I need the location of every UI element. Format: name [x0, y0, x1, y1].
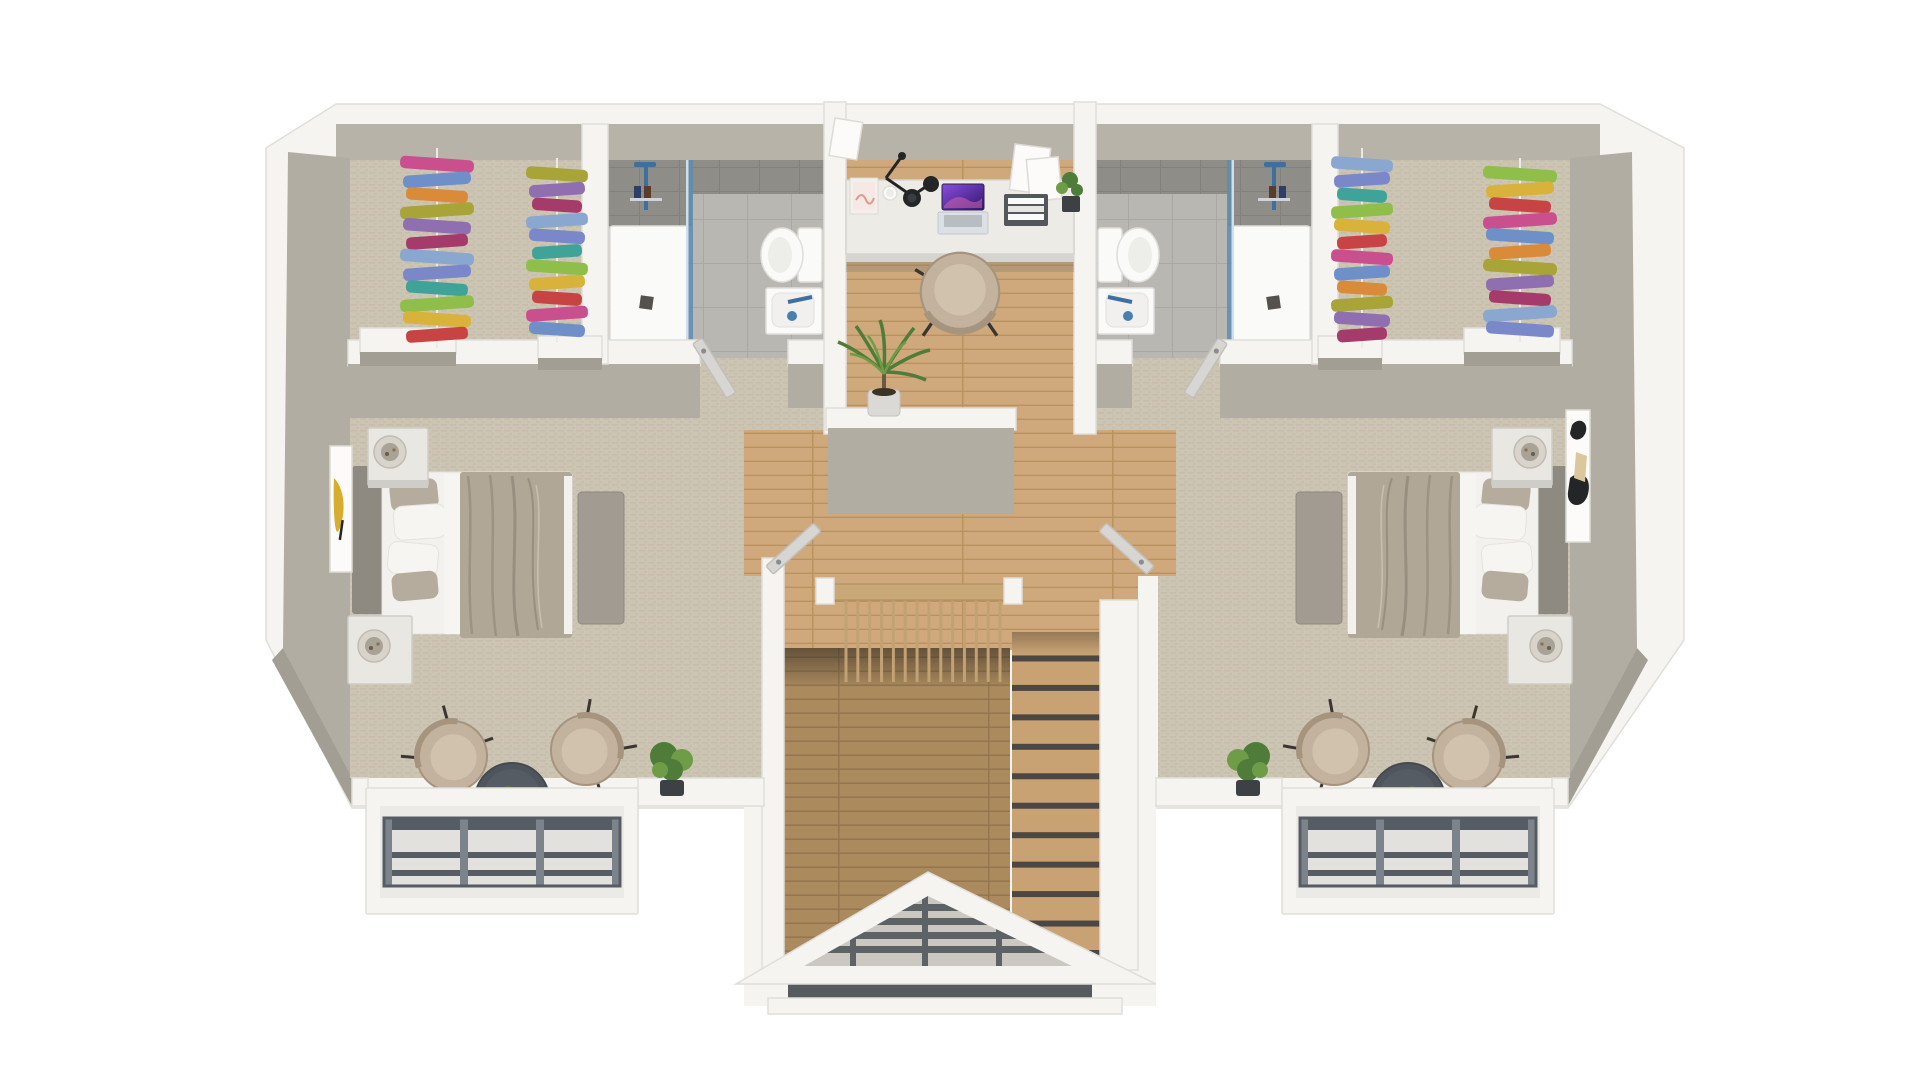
mug	[883, 186, 897, 200]
stair-tread	[1012, 897, 1100, 920]
stair-tread	[1012, 868, 1100, 891]
stair-tread	[1012, 750, 1100, 773]
spindle	[951, 600, 954, 682]
spindle	[845, 600, 848, 682]
spindle	[868, 600, 871, 682]
spindle	[892, 600, 895, 682]
stair-top-shadow	[1012, 632, 1100, 654]
spindle	[987, 600, 990, 682]
balcony-railing-grid	[384, 818, 620, 886]
spindle	[880, 600, 883, 682]
spindle	[963, 600, 966, 682]
stair-tread	[1012, 838, 1100, 861]
letter-tray	[1004, 194, 1048, 226]
stair-tread	[1012, 691, 1100, 714]
stair-tread	[1012, 661, 1100, 684]
handrail	[824, 584, 1018, 600]
laptop	[938, 184, 988, 234]
stair-tread	[1012, 720, 1100, 743]
spindle	[927, 600, 930, 682]
half-wall-cap	[826, 408, 1016, 430]
spindle	[916, 600, 919, 682]
spindle	[856, 600, 859, 682]
gable-fascia	[768, 998, 1122, 1014]
keyboard	[944, 215, 982, 227]
standing-book	[850, 178, 878, 214]
floor-plan-render	[0, 0, 1920, 1080]
spindle	[975, 600, 978, 682]
staircase	[1012, 632, 1100, 956]
half-wall-face	[828, 428, 1014, 514]
wall-art-right	[1566, 410, 1590, 542]
spindle	[999, 600, 1002, 682]
stair-tread	[1012, 809, 1100, 832]
leaning-board	[829, 118, 863, 160]
balcony-railing-grid	[1300, 818, 1536, 886]
stair-tread	[1012, 779, 1100, 802]
spindle	[939, 600, 942, 682]
spindle	[904, 600, 907, 682]
wall-art-left	[330, 446, 352, 572]
